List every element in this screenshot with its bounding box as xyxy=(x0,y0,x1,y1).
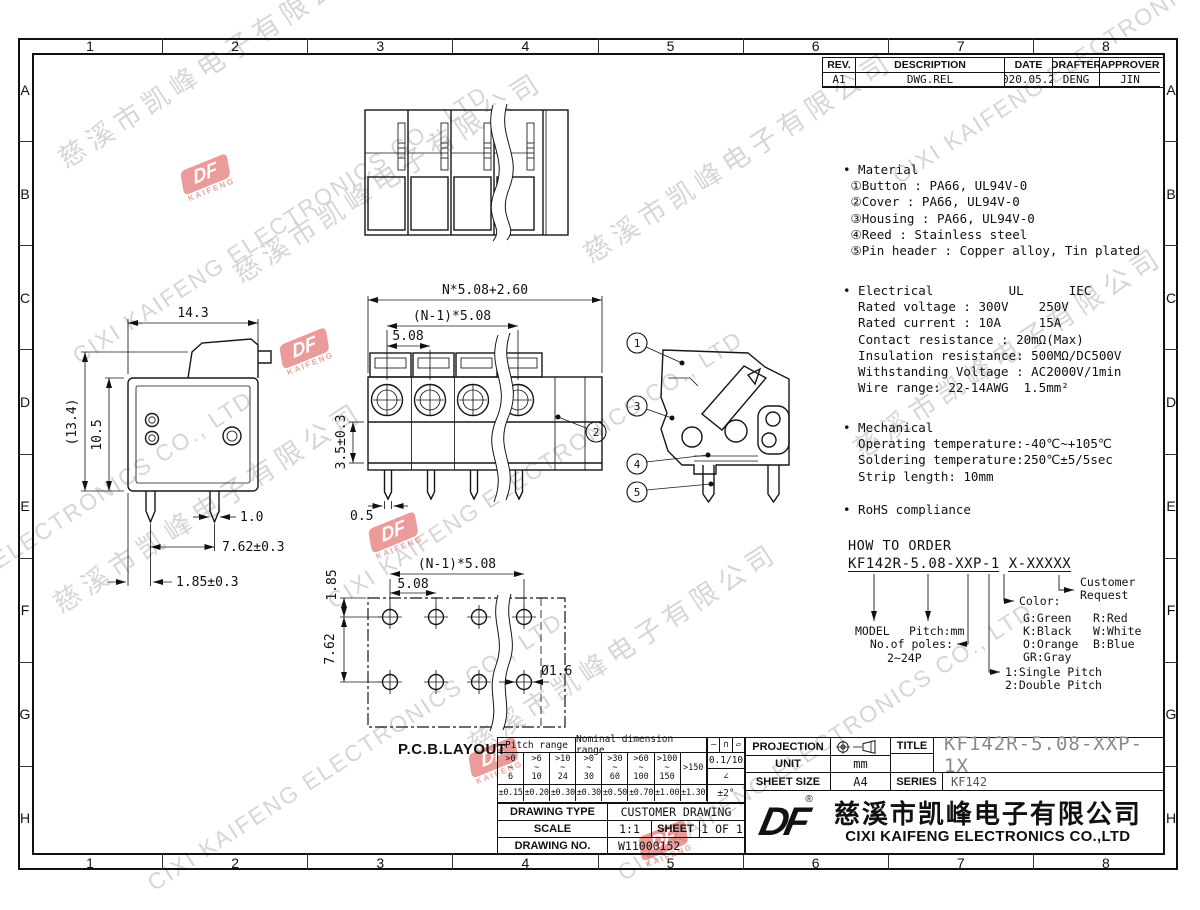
tolerance-value: ±0.70 xyxy=(628,785,654,801)
top-view-drawing xyxy=(355,95,610,245)
zone-label: C xyxy=(18,246,32,350)
side-view-geometry xyxy=(128,339,271,522)
mechanical-notes: • Mechanical Operating temperature:-40℃~… xyxy=(843,420,1113,485)
zone-label: 1 xyxy=(18,38,163,53)
zone-label: H xyxy=(18,767,32,870)
parallelogram-icon: ▱ xyxy=(733,738,744,752)
sheet-size-label: SHEET SIZE xyxy=(746,773,831,791)
projection-label: PROJECTION xyxy=(746,738,831,756)
order-color: W:White xyxy=(1093,624,1142,638)
order-color: O:Orange xyxy=(1023,637,1078,651)
balloon-3: 3 xyxy=(634,400,641,413)
order-model-label: MODEL xyxy=(855,624,890,638)
tolerance-value: ±0.15 xyxy=(498,785,524,801)
title-label: TITLE xyxy=(891,738,934,754)
zone-label: 8 xyxy=(1034,38,1178,53)
dim-label: 5.08 xyxy=(397,577,428,592)
angle-tolerance: ±2° xyxy=(708,785,744,801)
order-color: R:Red xyxy=(1093,611,1128,625)
tolerance-range: >0 ~ 30 xyxy=(576,753,602,785)
dim-label: 1.0 xyxy=(240,510,263,525)
zone-label: F xyxy=(18,559,32,663)
dim-label: 5.08 xyxy=(392,329,423,344)
electrical-notes: • Electrical UL IEC Rated voltage : 300V… xyxy=(843,283,1121,396)
dim-label: Ø1.6 xyxy=(541,664,572,679)
scale-label: SCALE xyxy=(498,821,608,837)
zone-label: B xyxy=(1164,142,1178,246)
zone-label: 4 xyxy=(453,38,598,53)
zone-label: H xyxy=(1164,767,1178,870)
order-pitch-type1: 1:Single Pitch xyxy=(1005,665,1102,679)
balloon-4: 4 xyxy=(634,458,641,471)
company-name-cn: 慈溪市凯峰电子有限公司 xyxy=(813,800,1163,828)
tolerance-header: Pitch range xyxy=(498,738,576,753)
how-to-order-title: HOW TO ORDER xyxy=(848,538,952,554)
top-view-geometry xyxy=(365,104,568,241)
revision-cell: 2020.05.27 xyxy=(1005,73,1053,88)
tolerance-range: >0 ~ 6 xyxy=(498,753,524,785)
zone-label: D xyxy=(18,350,32,454)
revision-header: DRAFTER xyxy=(1053,58,1100,73)
balloon-1: 1 xyxy=(634,337,641,350)
section-view-geometry xyxy=(661,350,789,502)
flatness-tolerance: 0.1/10 xyxy=(708,753,744,769)
dim-label: 0.5 xyxy=(350,509,373,524)
tolerance-range: >100 ~ 150 xyxy=(655,753,681,785)
order-customer-label: Request xyxy=(1080,588,1128,602)
section-view-drawing: 1 3 4 5 xyxy=(598,318,863,548)
how-to-order-diagram: HOW TO ORDER KF142R-5.08-XXP-1 X-XXXXX M… xyxy=(843,535,1168,697)
zone-label: 3 xyxy=(308,855,453,870)
revision-header: DATE xyxy=(1005,58,1053,73)
order-pitch-type2: 2:Double Pitch xyxy=(1005,678,1102,692)
pcb-layout-label: P.C.B.LAYOUT xyxy=(398,741,507,758)
pcb-layout-dimensions: (N-1)*5.08 5.08 1.85 7.62 Ø1.6 P.C.B.LAY… xyxy=(323,557,572,758)
tolerance-value: ±0.30 xyxy=(576,785,602,801)
order-color: K:Black xyxy=(1023,624,1072,638)
zone-label: D xyxy=(1164,350,1178,454)
zone-label: B xyxy=(18,142,32,246)
tolerance-table: Pitch range Nominal dimension range >0 ~… xyxy=(497,737,745,803)
tolerance-header: Nominal dimension range xyxy=(576,738,707,753)
dim-label: 14.3 xyxy=(177,306,208,321)
revision-header: REV. xyxy=(823,58,856,73)
revision-header: DESCRIPTION xyxy=(856,58,1005,73)
sheet-label: SHEET xyxy=(652,821,700,837)
tolerance-range: >6 ~ 10 xyxy=(524,753,550,785)
balloon-5: 5 xyxy=(634,486,641,499)
dim-label: 1.85±0.3 xyxy=(176,575,239,590)
sheet-value: 1 OF 1 xyxy=(700,821,744,837)
zone-label: 6 xyxy=(744,855,889,870)
order-color: B:Blue xyxy=(1093,637,1135,651)
zone-label: A xyxy=(18,38,32,142)
kaifeng-logo: DF xyxy=(741,800,810,845)
revision-table: REV. DESCRIPTION DATE DRAFTER APPROVER A… xyxy=(822,57,1165,88)
pcb-layout-geometry xyxy=(368,594,565,731)
zone-label: 5 xyxy=(599,38,744,53)
front-view-geometry xyxy=(368,333,602,502)
order-code: KF142R-5.08-XXP-1 X-XXXXX xyxy=(848,556,1071,572)
zone-label: 2 xyxy=(163,855,308,870)
drawing-type-label: DRAWING TYPE xyxy=(498,804,608,820)
zone-numbers-bottom: 12345678 xyxy=(18,855,1178,870)
tolerance-value: ±0.30 xyxy=(550,785,576,801)
order-color: G:Green xyxy=(1023,611,1071,625)
tolerance-range: >60 ~ 100 xyxy=(628,753,654,785)
tolerance-value: ±1.00 xyxy=(655,785,681,801)
zone-numbers-top: 12345678 xyxy=(18,38,1178,53)
dim-label: N*5.08+2.60 xyxy=(442,283,528,298)
angle-icon: ∠ xyxy=(708,769,744,785)
scale-value: 1:1 xyxy=(608,821,652,837)
revision-cell: JIN xyxy=(1100,73,1160,88)
drawing-no-label: DRAWING NO. xyxy=(498,838,608,854)
order-pitch-label: Pitch:mm xyxy=(909,624,964,638)
title-block: PROJECTION TITLE KF142R-5.08-XXP-1X UNIT… xyxy=(745,737,1165,855)
pcb-layout-drawing: (N-1)*5.08 5.08 1.85 7.62 Ø1.6 P.C.B.LAY… xyxy=(240,553,580,763)
zone-label: 7 xyxy=(889,38,1034,53)
series-value: KF142 xyxy=(943,773,1164,791)
projection-symbol-cell xyxy=(831,738,891,756)
side-view-dimensions: 14.3 (13.4) 10.5 1.0 7.62±0.3 1.85±0.3 xyxy=(65,306,285,590)
zone-label: A xyxy=(1164,38,1178,142)
registered-mark: ® xyxy=(805,794,812,805)
zone-label: 6 xyxy=(744,38,889,53)
unit-label: UNIT xyxy=(746,756,831,773)
sheet-size-value: A4 xyxy=(831,773,891,791)
company-logo: DF® xyxy=(746,800,813,845)
dim-label: 3.5±0.3 xyxy=(334,415,349,470)
revision-cell: DWG.REL xyxy=(856,73,1005,88)
revision-cell: DENG xyxy=(1053,73,1100,88)
drawing-type-value: CUSTOMER DRAWING xyxy=(608,804,744,820)
unit-value: mm xyxy=(831,756,891,773)
dim-label: 7.62 xyxy=(323,633,338,664)
material-notes: • Material ①Button : PA66, UL94V-0 ②Cove… xyxy=(843,162,1140,259)
dim-label: (13.4) xyxy=(65,399,80,446)
tolerance-value: ±0.50 xyxy=(602,785,628,801)
tolerance-range: >30 ~ 60 xyxy=(602,753,628,785)
tolerance-value: ±1.30 xyxy=(681,785,707,801)
tolerance-range: >150 xyxy=(681,753,707,785)
series-label: SERIES xyxy=(891,773,943,791)
dim-label: 1.85 xyxy=(325,569,340,600)
revision-header: APPROVER xyxy=(1100,58,1160,73)
tolerance-value: ±0.20 xyxy=(524,785,550,801)
dim-label: (N-1)*5.08 xyxy=(413,309,491,324)
straightness-icon: — xyxy=(708,738,720,752)
section-view-balloons: 1 3 4 5 xyxy=(627,333,714,502)
zone-label: 3 xyxy=(308,38,453,53)
order-color-label: Color: xyxy=(1019,594,1061,608)
zone-label: C xyxy=(1164,246,1178,350)
order-color: GR:Gray xyxy=(1023,650,1072,664)
zone-label: 1 xyxy=(18,855,163,870)
company-name-en: CIXI KAIFENG ELECTRONICS CO.,LTD xyxy=(813,828,1163,845)
tolerance-range: >10 ~ 24 xyxy=(550,753,576,785)
dim-label: 10.5 xyxy=(90,419,105,450)
dim-label: (N-1)*5.08 xyxy=(418,557,496,572)
order-poles-label: No.of poles: xyxy=(870,637,953,651)
order-poles-range: 2~24P xyxy=(887,651,922,665)
zone-label: 2 xyxy=(163,38,308,53)
front-view-drawing: N*5.08+2.60 (N-1)*5.08 5.08 3.5±0.3 0.5 … xyxy=(330,280,620,570)
drawing-title: KF142R-5.08-XXP-1X xyxy=(934,738,1164,773)
zone-label: E xyxy=(18,455,32,559)
third-angle-projection-icon xyxy=(833,739,889,755)
revision-cell: A1 xyxy=(823,73,856,88)
engineering-drawing-sheet: { "sheet": { "zone_numbers": ["1","2","3… xyxy=(0,0,1200,910)
drawing-info-block: DRAWING TYPE CUSTOMER DRAWING SCALE 1:1 … xyxy=(497,803,745,855)
drawing-no-value: W11000152 xyxy=(608,838,744,854)
zone-letters-right: ABCDEFGH xyxy=(1164,38,1178,870)
side-view-drawing: 14.3 (13.4) 10.5 1.0 7.62±0.3 1.85±0.3 xyxy=(55,295,345,595)
zone-label: 4 xyxy=(453,855,598,870)
arc-icon: ∩ xyxy=(720,738,732,752)
zone-label: G xyxy=(18,663,32,767)
zone-letters-left: ABCDEFGH xyxy=(18,38,32,870)
order-customer-label: Customer xyxy=(1080,575,1135,589)
zone-label: 5 xyxy=(599,855,744,870)
zone-label: 7 xyxy=(889,855,1034,870)
zone-label: 8 xyxy=(1034,855,1178,870)
company-block: DF® 慈溪市凯峰电子有限公司 CIXI KAIFENG ELECTRONICS… xyxy=(746,791,1163,853)
